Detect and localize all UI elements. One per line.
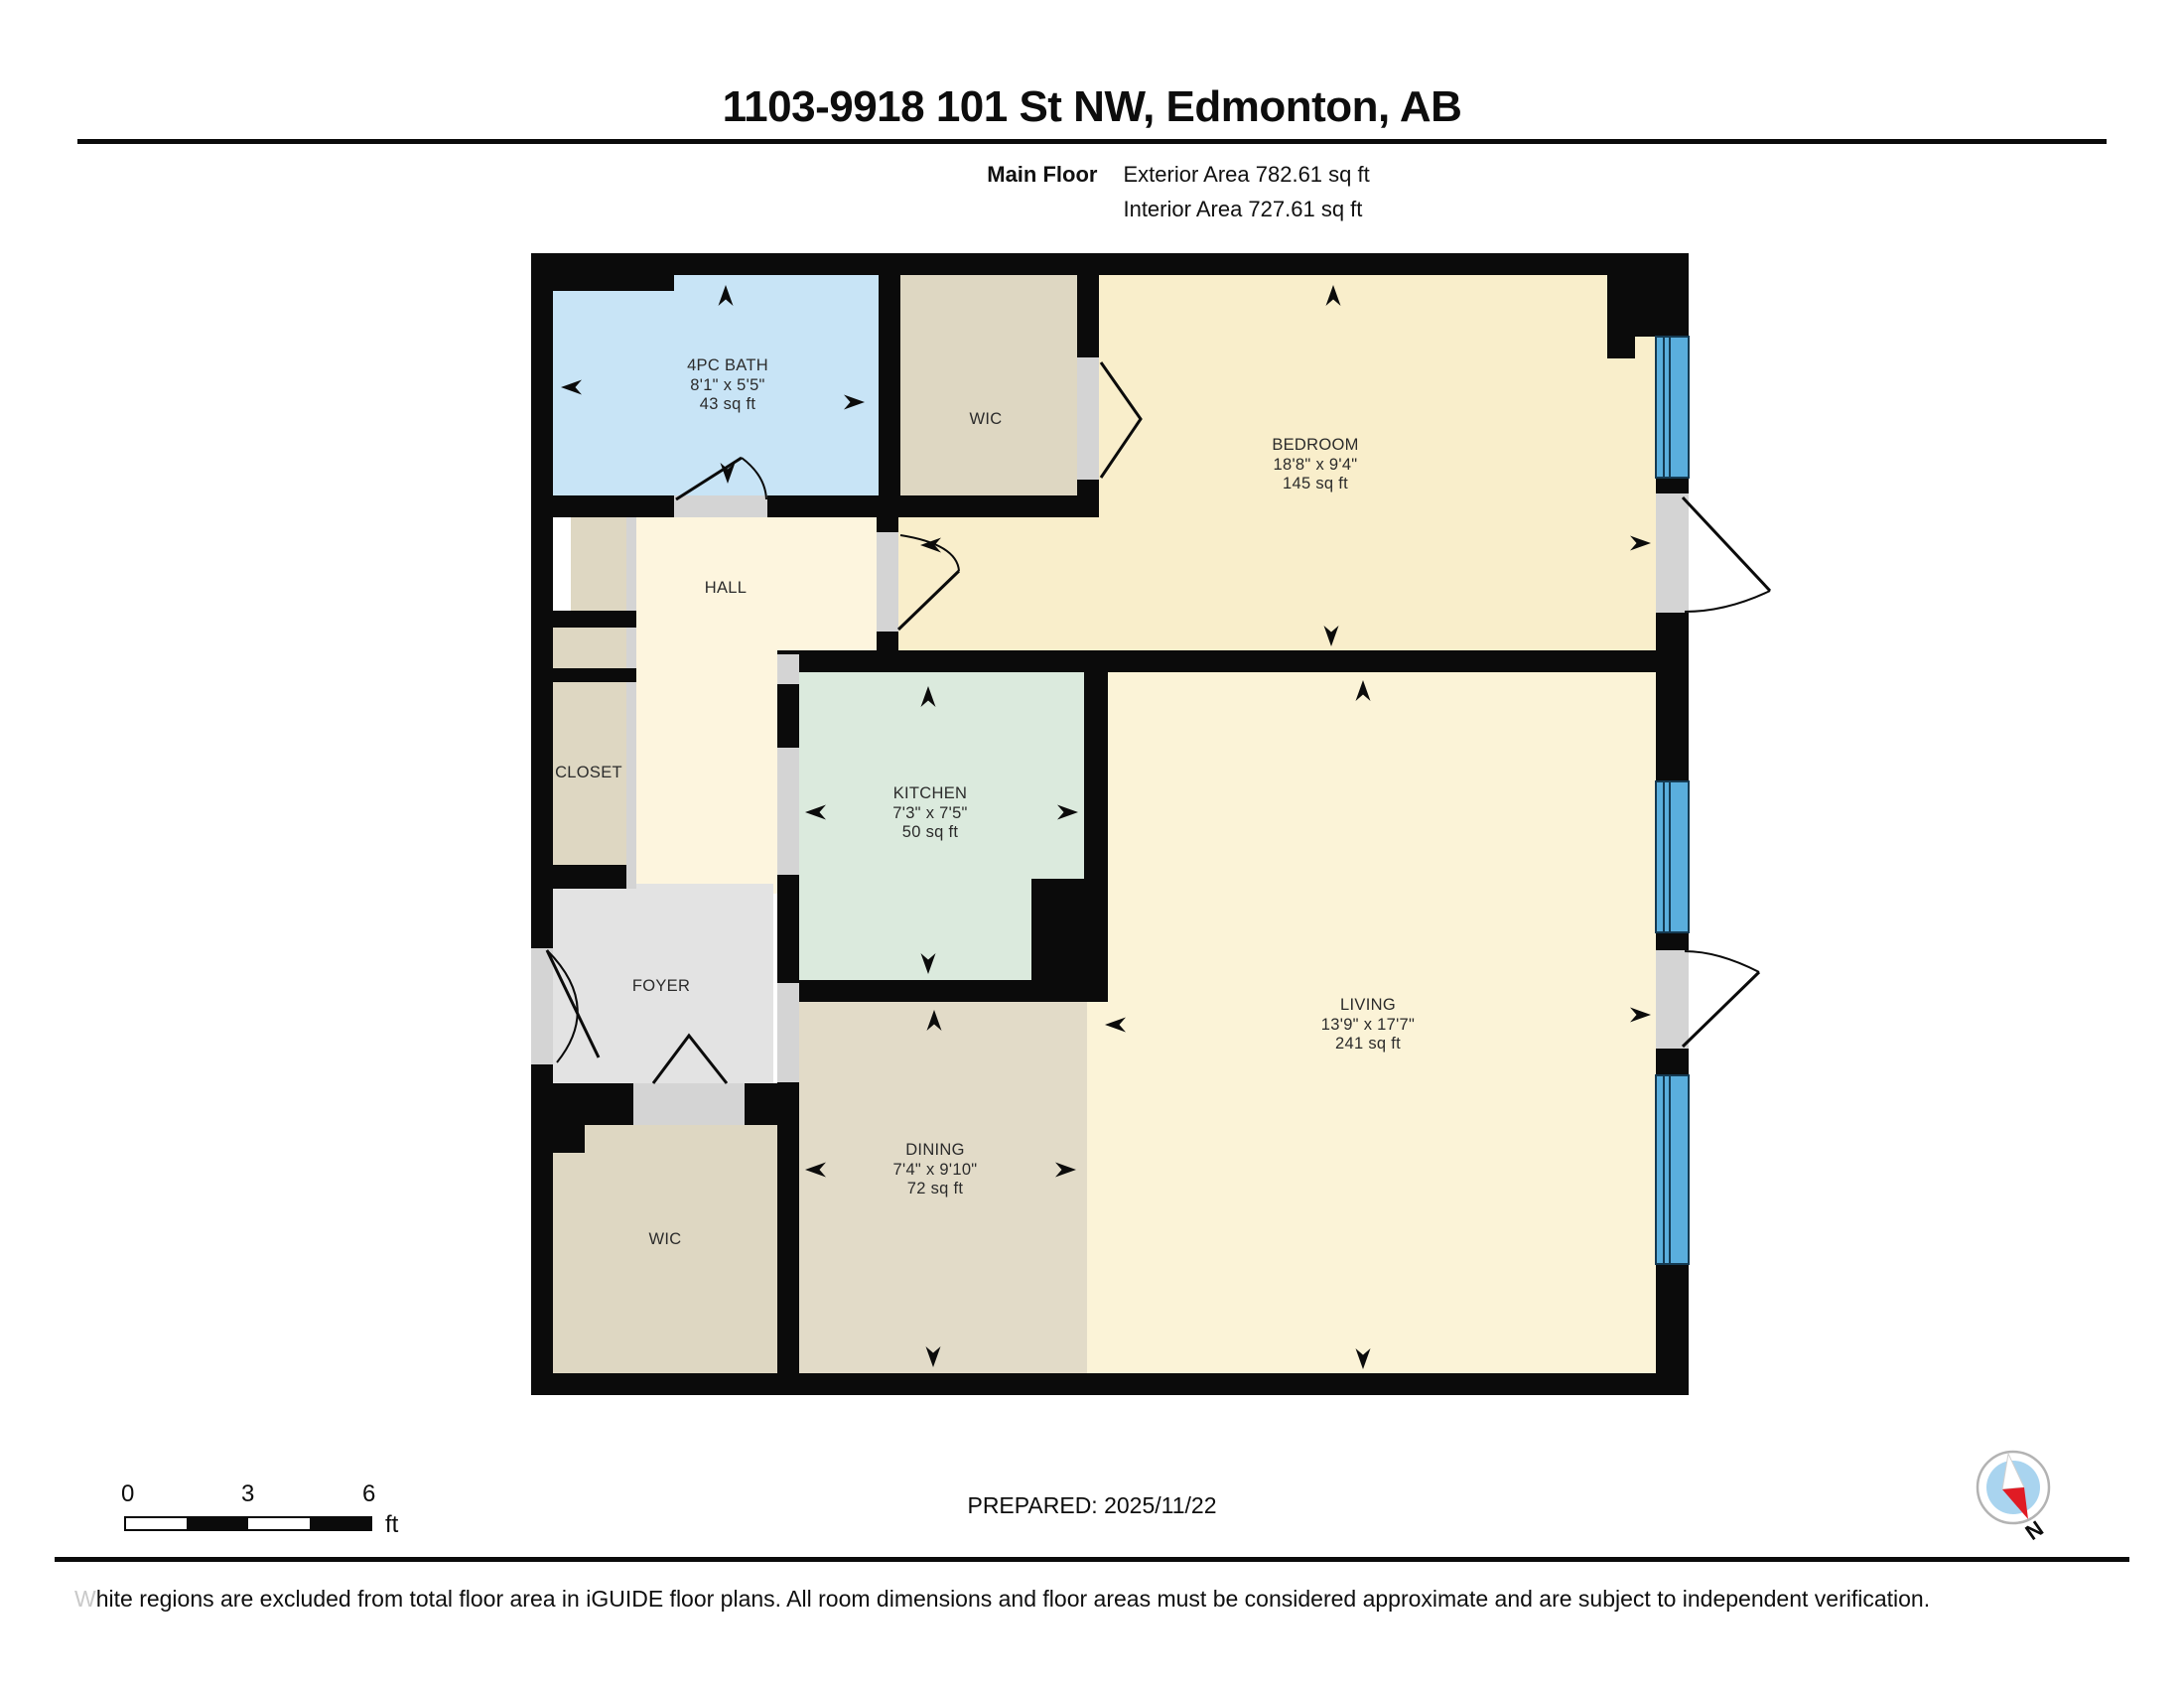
wall bbox=[1656, 1049, 1689, 1075]
room-label-living: LIVING bbox=[1340, 996, 1396, 1014]
wall bbox=[626, 611, 636, 628]
wall bbox=[777, 650, 1663, 672]
room-dims-kitchen: 7'3" x 7'5" bbox=[892, 804, 967, 822]
living-balcony-door-opening bbox=[1656, 950, 1689, 1049]
wall bbox=[553, 865, 636, 889]
page-title: 1103-9918 101 St NW, Edmonton, AB bbox=[0, 82, 2184, 132]
wall bbox=[1084, 650, 1108, 883]
windows bbox=[1656, 337, 1689, 1264]
room-bedroom-area bbox=[1087, 263, 1658, 664]
floor-label: Main Floor bbox=[987, 157, 1097, 226]
window-bedroom bbox=[1656, 337, 1689, 478]
wall bbox=[879, 253, 900, 517]
room-dims-living: 13'9" x 17'7" bbox=[1321, 1016, 1415, 1034]
room-label-dining: DINING bbox=[905, 1141, 965, 1159]
floor-plan: 4PC BATH 8'1" x 5'5" 43 sq ft WIC BEDROO… bbox=[531, 253, 1812, 1395]
room-wic-upper-area bbox=[888, 263, 1092, 511]
closet-area bbox=[545, 623, 628, 672]
room-label-wic-upper: WIC bbox=[970, 410, 1003, 428]
wall bbox=[531, 253, 674, 291]
wall bbox=[1031, 879, 1108, 982]
floor-summary: Main Floor Exterior Area 782.61 sq ft In… bbox=[0, 157, 2184, 226]
wall bbox=[626, 668, 636, 682]
room-bedroom-area bbox=[884, 501, 1107, 665]
wic-lower-door-opening bbox=[633, 1083, 745, 1125]
closet-area bbox=[571, 513, 628, 615]
room-hall-area bbox=[630, 650, 779, 894]
wall bbox=[1656, 478, 1689, 493]
foyer-dining-opening bbox=[777, 983, 799, 1082]
interior-area: Interior Area 727.61 sq ft bbox=[1123, 192, 1369, 226]
room-area-dining: 72 sq ft bbox=[907, 1180, 964, 1197]
wall bbox=[531, 253, 553, 1395]
wall bbox=[1656, 1264, 1689, 1395]
wall bbox=[553, 611, 636, 628]
floor-areas: Exterior Area 782.61 sq ft Interior Area… bbox=[1123, 157, 1369, 226]
compass: N bbox=[1961, 1438, 2080, 1557]
sliding-door-track bbox=[626, 517, 636, 889]
room-label-foyer: FOYER bbox=[632, 977, 690, 995]
window-living-lower bbox=[1656, 1075, 1689, 1264]
wall bbox=[531, 495, 1099, 517]
room-label-bath: 4PC BATH bbox=[687, 356, 768, 374]
floorplan-page: { "header": { "title": "1103-9918 101 St… bbox=[0, 0, 2184, 1688]
living-balcony-door bbox=[1683, 951, 1759, 1047]
hall-bedroom-door-opening bbox=[877, 532, 898, 632]
wall bbox=[1656, 613, 1689, 781]
wall bbox=[553, 668, 636, 682]
entry-door-opening bbox=[531, 948, 553, 1064]
room-label-hall: HALL bbox=[705, 579, 747, 597]
bedroom-balcony-door bbox=[1683, 497, 1770, 612]
room-label-closet: CLOSET bbox=[555, 764, 622, 781]
room-label-kitchen: KITCHEN bbox=[893, 784, 968, 802]
room-label-bedroom: BEDROOM bbox=[1272, 436, 1358, 454]
wall bbox=[531, 1373, 1689, 1395]
wall bbox=[777, 889, 799, 1375]
room-dims-dining: 7'4" x 9'10" bbox=[893, 1161, 978, 1179]
wall bbox=[777, 980, 1108, 1002]
room-label-wic-lower: WIC bbox=[649, 1230, 682, 1248]
window-living-upper bbox=[1656, 781, 1689, 932]
room-dims-bath: 8'1" x 5'5" bbox=[690, 376, 764, 394]
header-divider bbox=[77, 139, 2107, 144]
wall bbox=[553, 1125, 585, 1153]
disclaimer-text: White regions are excluded from total fl… bbox=[74, 1586, 2119, 1613]
wic-bedroom-door-opening bbox=[1077, 357, 1099, 480]
room-area-bedroom: 145 sq ft bbox=[1283, 475, 1348, 492]
kitchen-opening bbox=[777, 654, 799, 684]
wall bbox=[1656, 932, 1689, 950]
prepared-date: PREPARED: 2025/11/22 bbox=[0, 1492, 2184, 1519]
footer-divider bbox=[55, 1557, 2129, 1562]
room-area-bath: 43 sq ft bbox=[700, 395, 756, 413]
bedroom-balcony-door-opening bbox=[1656, 493, 1689, 613]
room-area-living: 241 sq ft bbox=[1335, 1035, 1401, 1053]
exterior-area: Exterior Area 782.61 sq ft bbox=[1123, 157, 1369, 192]
room-hall-area bbox=[630, 506, 877, 657]
bath-door-opening bbox=[674, 495, 767, 517]
kitchen-opening bbox=[777, 748, 799, 875]
wall bbox=[1607, 275, 1635, 358]
wall bbox=[531, 253, 1689, 275]
room-area-kitchen: 50 sq ft bbox=[902, 823, 959, 841]
room-dims-bedroom: 18'8" x 9'4" bbox=[1274, 456, 1358, 474]
